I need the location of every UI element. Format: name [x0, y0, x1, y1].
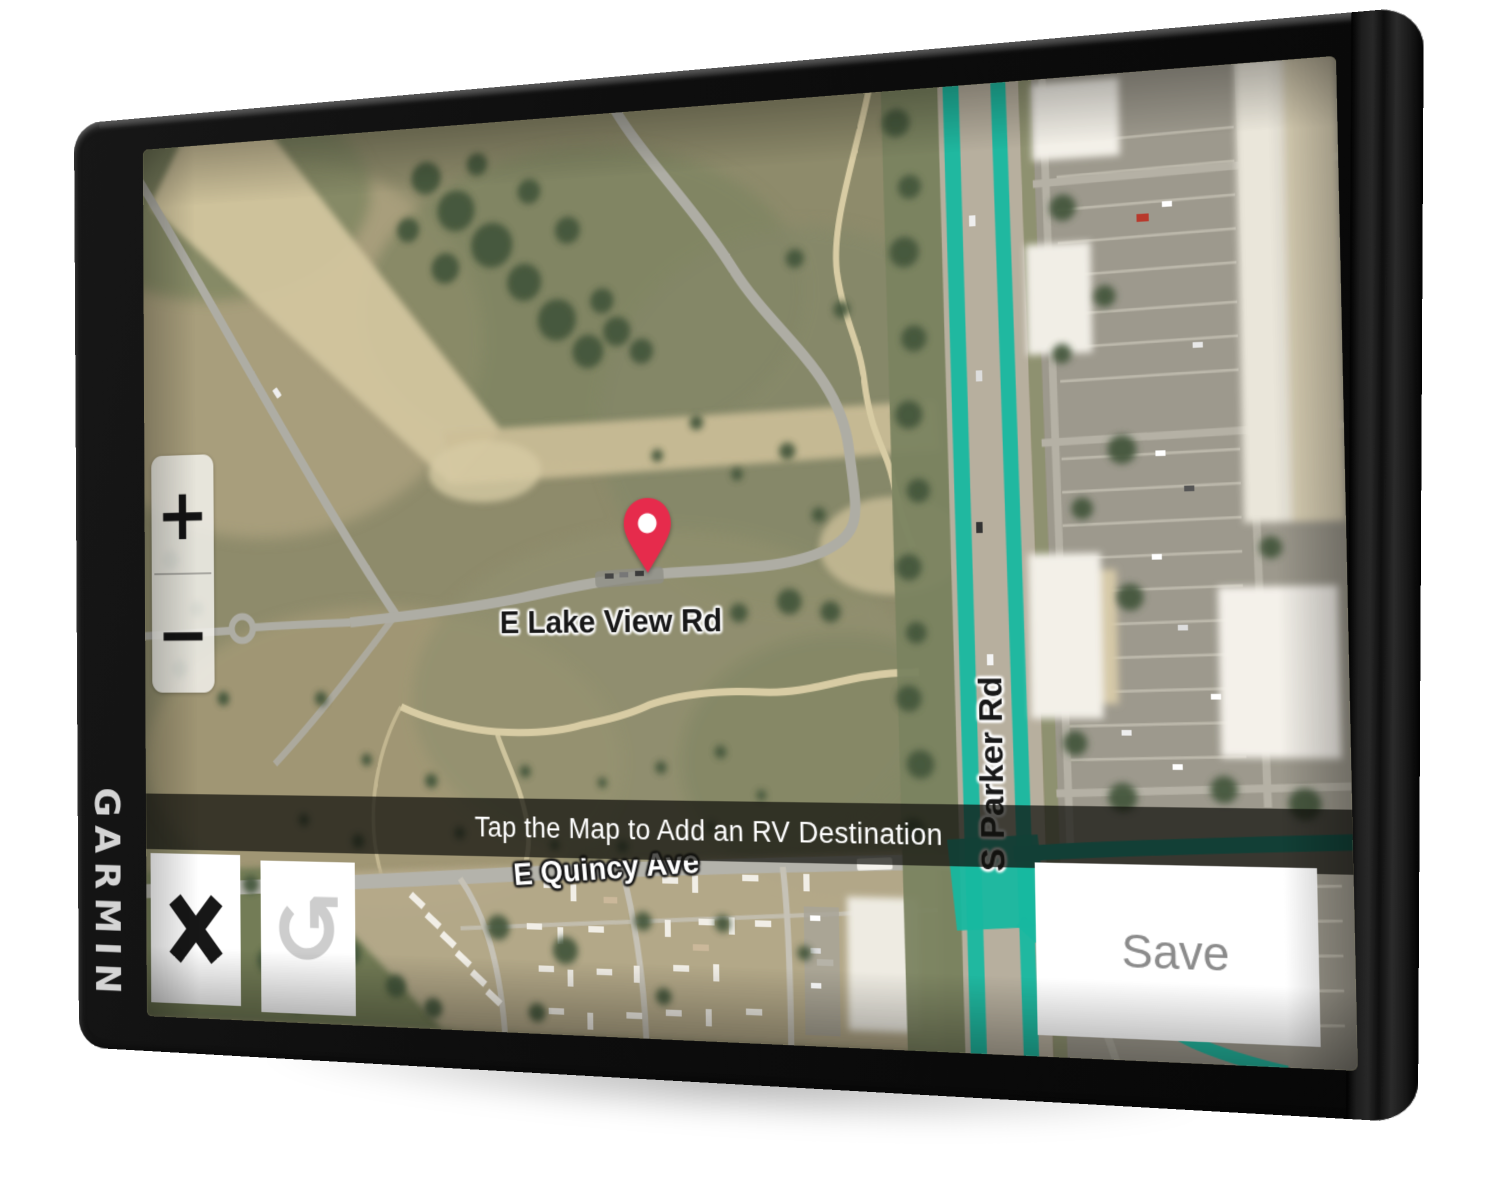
close-icon: [167, 889, 223, 969]
undo-icon: ↺: [272, 881, 345, 981]
zoom-control: + −: [151, 454, 214, 693]
device-side-edge: [1346, 6, 1424, 1123]
zoom-out-icon: −: [157, 598, 210, 670]
zoom-out-button[interactable]: −: [152, 574, 215, 692]
instruction-banner-text: Tap the Map to Add an RV Destination: [474, 811, 943, 852]
save-button-label: Save: [1121, 924, 1230, 982]
map-label-lake-view-rd: E Lake View Rd: [500, 601, 723, 641]
close-button[interactable]: [151, 853, 241, 1006]
zoom-in-button[interactable]: +: [151, 454, 214, 573]
map-pin-icon: [622, 496, 674, 575]
undo-button[interactable]: ↺: [260, 860, 355, 1016]
garmin-logo: GARMIN: [87, 764, 127, 1019]
zoom-in-icon: +: [156, 478, 208, 550]
device-screen: E Lake View Rd S Parker Rd E Quincy Ave …: [143, 56, 1358, 1071]
product-photo-stage: GARMIN: [0, 0, 1500, 1188]
save-button[interactable]: Save: [1035, 862, 1321, 1047]
corner-building-parking: [804, 906, 841, 1036]
